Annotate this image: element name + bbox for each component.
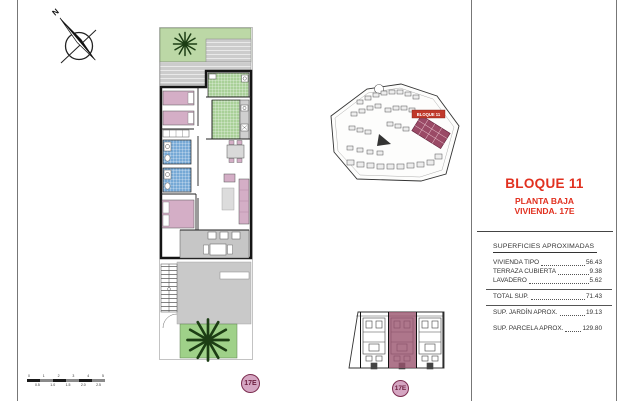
- sofa: [239, 179, 249, 224]
- surface-value: 19.13: [586, 310, 602, 317]
- surface-label: SUP. JARDÍN APROX.: [493, 310, 558, 317]
- site-block-label: BLOQUE 11: [417, 112, 441, 117]
- surface-value: 5.62: [590, 278, 602, 285]
- surfaces-table: SUPERFICIES APROXIMADAS VIVIENDA TIPO 56…: [486, 243, 612, 335]
- dotted-leader: [541, 265, 585, 266]
- unit-badge-label: 17E: [395, 385, 407, 392]
- total-row: TOTAL SUP. 71.43: [493, 294, 602, 301]
- floor-plan: [158, 26, 255, 362]
- sideboard: [224, 174, 235, 182]
- scale-bar-segments: [27, 379, 105, 382]
- compass-north-icon: N: [48, 5, 106, 69]
- door-arc: [163, 314, 177, 328]
- title-block-rule: [477, 231, 613, 232]
- bathroom-top: [208, 73, 249, 97]
- bathroom-2: [163, 168, 191, 192]
- surface-value: 129.80: [582, 326, 602, 333]
- rear-terrace: [177, 262, 251, 324]
- surface-label: SUP. PARCELA APROX.: [493, 326, 563, 333]
- scale-bar-bottom-labels: 0.51.0 1.52.0 2.5: [35, 383, 101, 387]
- dotted-leader: [558, 274, 589, 275]
- plan-sheet: N: [0, 0, 630, 401]
- dining-table: [227, 145, 244, 158]
- unit-title: VIVIENDA. 17E: [472, 206, 617, 216]
- frame-left-line: [17, 0, 18, 401]
- surface-row: SUP. PARCELA APROX. 129.80: [493, 326, 602, 333]
- sink-icon: [243, 77, 246, 80]
- table-separator: [486, 305, 612, 306]
- scale-bar-top-labels: 01 23 45: [28, 374, 104, 378]
- planter: [220, 272, 249, 279]
- dotted-leader: [531, 299, 585, 300]
- surface-row: VIVIENDA TIPO 56.43: [493, 260, 602, 267]
- surface-row: SUP. JARDÍN APROX. 19.13: [493, 310, 602, 317]
- surface-label: LAVADERO: [493, 278, 527, 285]
- key-plan: [346, 311, 448, 375]
- surface-value: 71.43: [586, 294, 602, 301]
- dotted-leader: [560, 315, 585, 316]
- rug: [222, 188, 234, 210]
- block-title: BLOQUE 11: [472, 176, 617, 191]
- kitchen: [206, 97, 251, 139]
- surface-row: LAVADERO 5.62: [493, 278, 602, 285]
- highlighted-unit-band: [389, 312, 416, 368]
- north-label: N: [51, 7, 61, 18]
- surface-value: 9.38: [590, 269, 602, 276]
- covered-terrace: [180, 230, 249, 258]
- surface-value: 56.43: [586, 260, 602, 267]
- surface-label: TERRAZA CUBIERTA: [493, 269, 556, 276]
- unit-badge: 17E: [392, 380, 409, 397]
- scale-bar: 01 23 45 0.51.0 1.52.0 2.5: [27, 374, 107, 387]
- terrace-table: [210, 244, 226, 255]
- toilet-icon: [165, 155, 170, 161]
- table-separator: [486, 289, 612, 290]
- surface-row: TERRAZA CUBIERTA 9.38: [493, 269, 602, 276]
- surfaces-header: SUPERFICIES APROXIMADAS: [493, 243, 597, 253]
- surface-label: TOTAL SUP.: [493, 294, 529, 301]
- rear-yard: [161, 262, 251, 361]
- site-plan: BLOQUE 11: [327, 82, 463, 195]
- unit-badge-label: 17E: [244, 380, 256, 387]
- surface-label: VIVIENDA TIPO: [493, 260, 539, 267]
- bathroom-1: [163, 140, 191, 164]
- dotted-leader: [565, 331, 581, 332]
- dotted-leader: [529, 283, 589, 284]
- floor-title: PLANTA BAJA: [472, 196, 617, 206]
- toilet-icon: [165, 183, 170, 189]
- unit-badge: 17E: [241, 374, 260, 393]
